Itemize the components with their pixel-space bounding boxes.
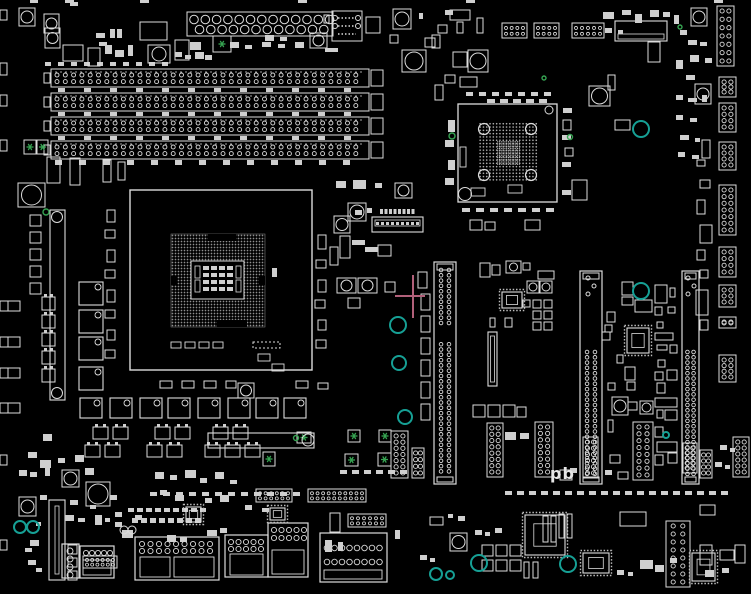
smd-component (485, 532, 490, 536)
smd-component (262, 508, 269, 512)
smd-component (690, 118, 697, 122)
smd-component (58, 458, 65, 463)
smd-component (720, 445, 727, 450)
smd-component (686, 75, 695, 80)
smd-component (70, 500, 78, 505)
smd-component (420, 555, 427, 560)
smd-component (375, 183, 382, 188)
smd-component (230, 42, 239, 48)
smd-component (562, 162, 571, 167)
smd-component (245, 45, 252, 49)
smd-component (40, 495, 47, 500)
smd-component (505, 432, 516, 440)
smd-component (28, 452, 37, 458)
smd-component (622, 10, 631, 15)
smd-component (730, 448, 735, 452)
smd-component (352, 240, 365, 245)
smd-component (28, 560, 36, 565)
smd-component (40, 460, 51, 468)
smd-component (30, 540, 39, 546)
smd-component (702, 95, 707, 102)
smd-component (617, 570, 624, 575)
smd-component (155, 472, 164, 479)
smd-component (705, 58, 712, 63)
smd-component (205, 498, 212, 503)
smd-component (25, 548, 32, 552)
smd-component (603, 12, 614, 19)
smd-component (110, 29, 115, 38)
smd-component (128, 45, 133, 56)
smd-component (140, 0, 149, 3)
smd-component (78, 518, 85, 522)
smd-component (562, 190, 571, 195)
smd-component (520, 433, 529, 439)
smd-component (715, 462, 722, 467)
smd-component (338, 542, 343, 551)
smd-component (272, 268, 277, 277)
smd-component (95, 520, 102, 525)
smd-component (692, 155, 699, 159)
smd-component (230, 480, 237, 484)
smd-component (43, 434, 52, 441)
smd-component (90, 505, 96, 509)
smd-component (200, 478, 207, 483)
smd-component (160, 490, 167, 495)
smd-component (175, 52, 182, 57)
smd-component (365, 247, 378, 252)
smd-component (663, 12, 670, 17)
smd-component (36, 568, 42, 572)
smd-component (678, 152, 685, 157)
smd-component (220, 528, 227, 533)
smd-component (430, 558, 435, 562)
smd-component (395, 530, 400, 539)
smd-component (458, 516, 465, 521)
smd-component (105, 45, 112, 54)
smd-component (280, 37, 287, 41)
smd-component (448, 160, 455, 170)
smd-component (30, 0, 38, 3)
smd-component (96, 33, 105, 38)
smd-component (680, 30, 687, 35)
smd-component (175, 495, 184, 501)
smd-component (353, 180, 366, 189)
smd-component (680, 135, 689, 140)
smd-component (722, 568, 729, 573)
smd-component (135, 515, 142, 520)
smd-component (115, 522, 122, 527)
smd-component (635, 14, 642, 23)
smd-component (215, 472, 224, 479)
smd-component (19, 470, 27, 476)
smd-component (325, 540, 332, 552)
smd-component (714, 0, 723, 3)
smd-component (466, 0, 475, 3)
smd-component (75, 455, 84, 462)
smd-component (325, 48, 338, 52)
smd-component (367, 208, 372, 213)
smd-component (448, 120, 455, 132)
smd-component (650, 10, 659, 17)
smd-component (475, 530, 482, 535)
smd-component (295, 42, 304, 48)
smd-component (45, 468, 50, 476)
silkscreen-label-pb: pb (550, 464, 575, 483)
smd-component (190, 42, 201, 50)
smd-component (65, 0, 74, 3)
smd-component (170, 475, 177, 480)
smd-component (245, 505, 252, 510)
smd-component (265, 35, 274, 41)
smd-component (448, 514, 453, 518)
smd-component (117, 29, 122, 38)
smd-pad-row (376, 222, 419, 225)
smd-component (205, 55, 212, 60)
smd-component (185, 470, 196, 478)
smd-component (115, 512, 122, 517)
smd-component (628, 572, 633, 576)
smd-component (65, 515, 74, 521)
pcb-board-diagram[interactable] (0, 0, 751, 594)
smd-component (445, 10, 453, 15)
smd-component (185, 55, 191, 59)
smd-component (674, 15, 679, 24)
smd-component (336, 181, 346, 188)
smd-component (700, 42, 707, 46)
smd-component (85, 468, 94, 475)
smd-component (278, 44, 285, 48)
smd-component (195, 52, 204, 59)
smd-component (690, 55, 699, 62)
smd-component (688, 40, 697, 45)
smd-component (105, 518, 110, 522)
smd-component (95, 515, 102, 520)
smd-component (298, 0, 307, 3)
smd-component (670, 558, 677, 563)
pcb-layout-viewport: pb (0, 0, 751, 594)
smd-component (655, 565, 664, 572)
smd-component (695, 138, 700, 142)
smd-component (445, 178, 454, 185)
smd-component (676, 115, 683, 120)
smd-component (207, 530, 217, 536)
smd-component (419, 13, 423, 19)
smd-component (605, 28, 612, 33)
smd-component (676, 60, 683, 69)
smd-component (30, 472, 37, 477)
smd-component (618, 30, 623, 34)
smd-component (605, 470, 612, 475)
smd-component (725, 465, 730, 469)
smd-component (262, 42, 271, 47)
smd-component (110, 495, 117, 500)
smd-component (705, 570, 714, 577)
smd-component (355, 210, 362, 215)
smd-component (167, 535, 176, 542)
smd-component (688, 98, 697, 102)
smd-component (563, 108, 572, 113)
smd-component (495, 528, 502, 533)
smd-component (180, 537, 187, 542)
smd-component (220, 495, 229, 502)
smd-component (445, 140, 454, 147)
smd-component (676, 95, 683, 100)
smd-component (115, 50, 124, 57)
smd-component (640, 560, 653, 569)
